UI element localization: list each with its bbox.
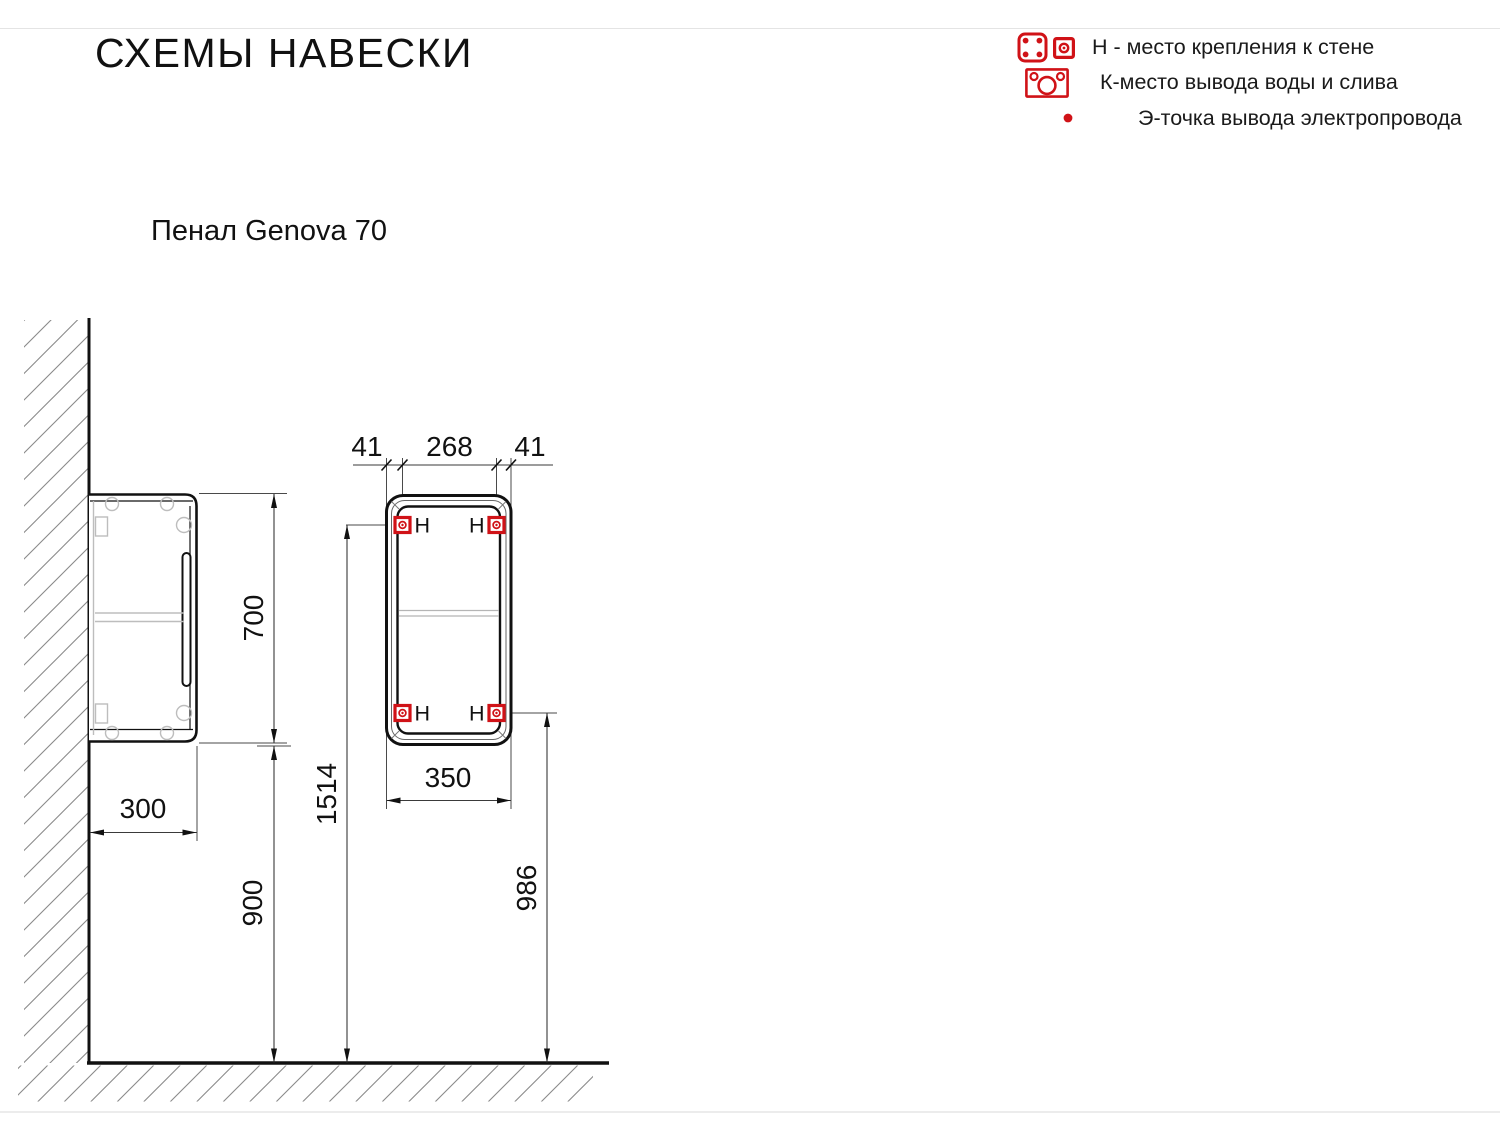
dim-width-label: 350 bbox=[425, 762, 472, 793]
dim-height-label: 700 bbox=[238, 595, 269, 642]
dim-offset-right-label: 41 bbox=[514, 431, 545, 462]
fastener-h-label: Н bbox=[469, 702, 485, 726]
dim-bottom-fastener-height-label: 986 bbox=[511, 865, 542, 912]
dim-front-width: 350 bbox=[387, 748, 512, 809]
fastener-h-label: Н bbox=[415, 514, 431, 538]
dim-bottom-clearance-label: 900 bbox=[237, 880, 268, 927]
dim-bottom-clearance: 900 bbox=[237, 746, 291, 1063]
dim-side-height: 700 bbox=[199, 494, 287, 744]
dim-top-offsets: 41 268 41 bbox=[351, 431, 553, 471]
door-handle-groove bbox=[183, 553, 191, 686]
mounting-scheme-page: СХЕМЫ НАВЕСКИ Н - место крепления к стен… bbox=[0, 0, 1500, 1126]
wall bbox=[24, 318, 89, 1064]
dim-top-fastener-height-label: 1514 bbox=[311, 763, 342, 825]
cabinet-side-view bbox=[89, 495, 197, 742]
dim-offset-left-label: 41 bbox=[351, 431, 382, 462]
fastener-h-label: Н bbox=[415, 702, 431, 726]
wall-hatch bbox=[24, 320, 88, 1063]
mounting-diagram: 700 300 900 1514 bbox=[0, 0, 1500, 1126]
dim-side-depth: 300 bbox=[90, 746, 197, 841]
dim-span-label: 268 bbox=[426, 431, 473, 462]
floor bbox=[18, 1063, 609, 1102]
floor-hatch bbox=[18, 1066, 593, 1102]
dim-bottom-fastener-height: 986 bbox=[397, 713, 557, 1063]
fastener-h-label: Н bbox=[469, 514, 485, 538]
dim-depth-label: 300 bbox=[120, 793, 167, 824]
